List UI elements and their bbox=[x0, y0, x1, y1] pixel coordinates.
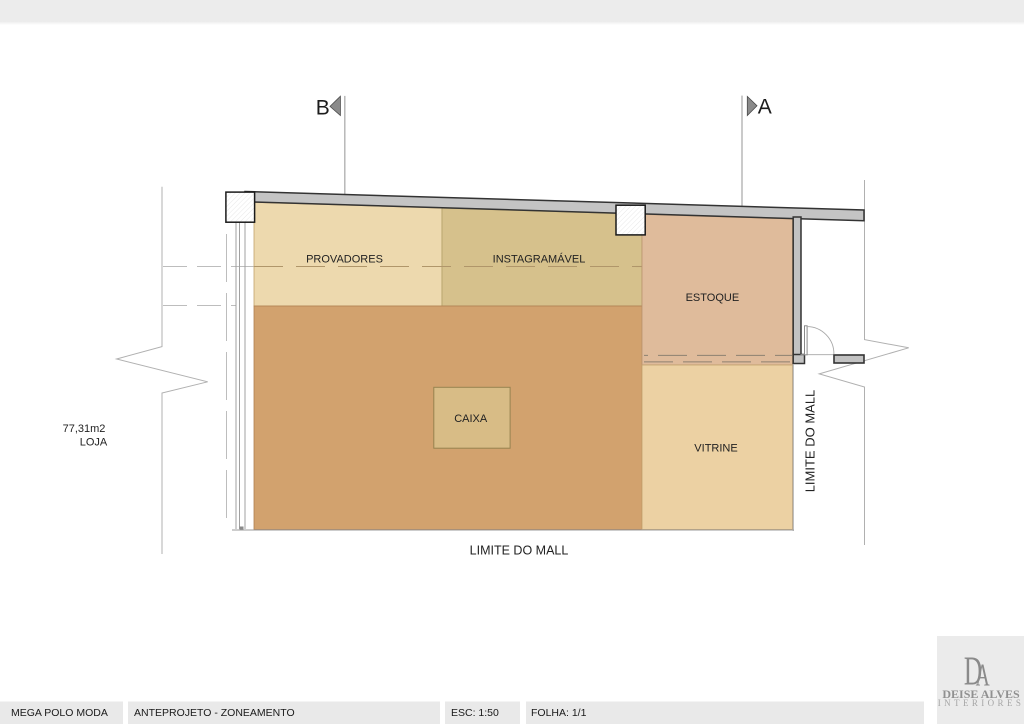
svg-text:B: B bbox=[316, 97, 330, 120]
svg-text:INSTAGRAMÁVEL: INSTAGRAMÁVEL bbox=[493, 253, 586, 266]
svg-text:LIMITE DO MALL: LIMITE DO MALL bbox=[470, 544, 569, 558]
svg-text:INTERIORES: INTERIORES bbox=[938, 698, 1024, 708]
svg-text:FOLHA: 1/1: FOLHA: 1/1 bbox=[531, 707, 587, 719]
svg-text:ANTEPROJETO - ZONEAMENTO: ANTEPROJETO - ZONEAMENTO bbox=[134, 707, 295, 719]
svg-text:ESC: 1:50: ESC: 1:50 bbox=[451, 707, 499, 719]
svg-text:VITRINE: VITRINE bbox=[694, 443, 737, 455]
svg-text:LOJA: LOJA bbox=[80, 437, 108, 449]
svg-text:77,31m2: 77,31m2 bbox=[63, 423, 106, 435]
svg-text:LIMITE DO MALL: LIMITE DO MALL bbox=[803, 390, 818, 493]
svg-text:CAIXA: CAIXA bbox=[454, 413, 488, 425]
svg-text:PROVADORES: PROVADORES bbox=[306, 254, 383, 266]
svg-text:ESTOQUE: ESTOQUE bbox=[686, 292, 740, 304]
svg-text:MEGA POLO MODA: MEGA POLO MODA bbox=[11, 707, 108, 719]
svg-text:A: A bbox=[758, 95, 772, 118]
